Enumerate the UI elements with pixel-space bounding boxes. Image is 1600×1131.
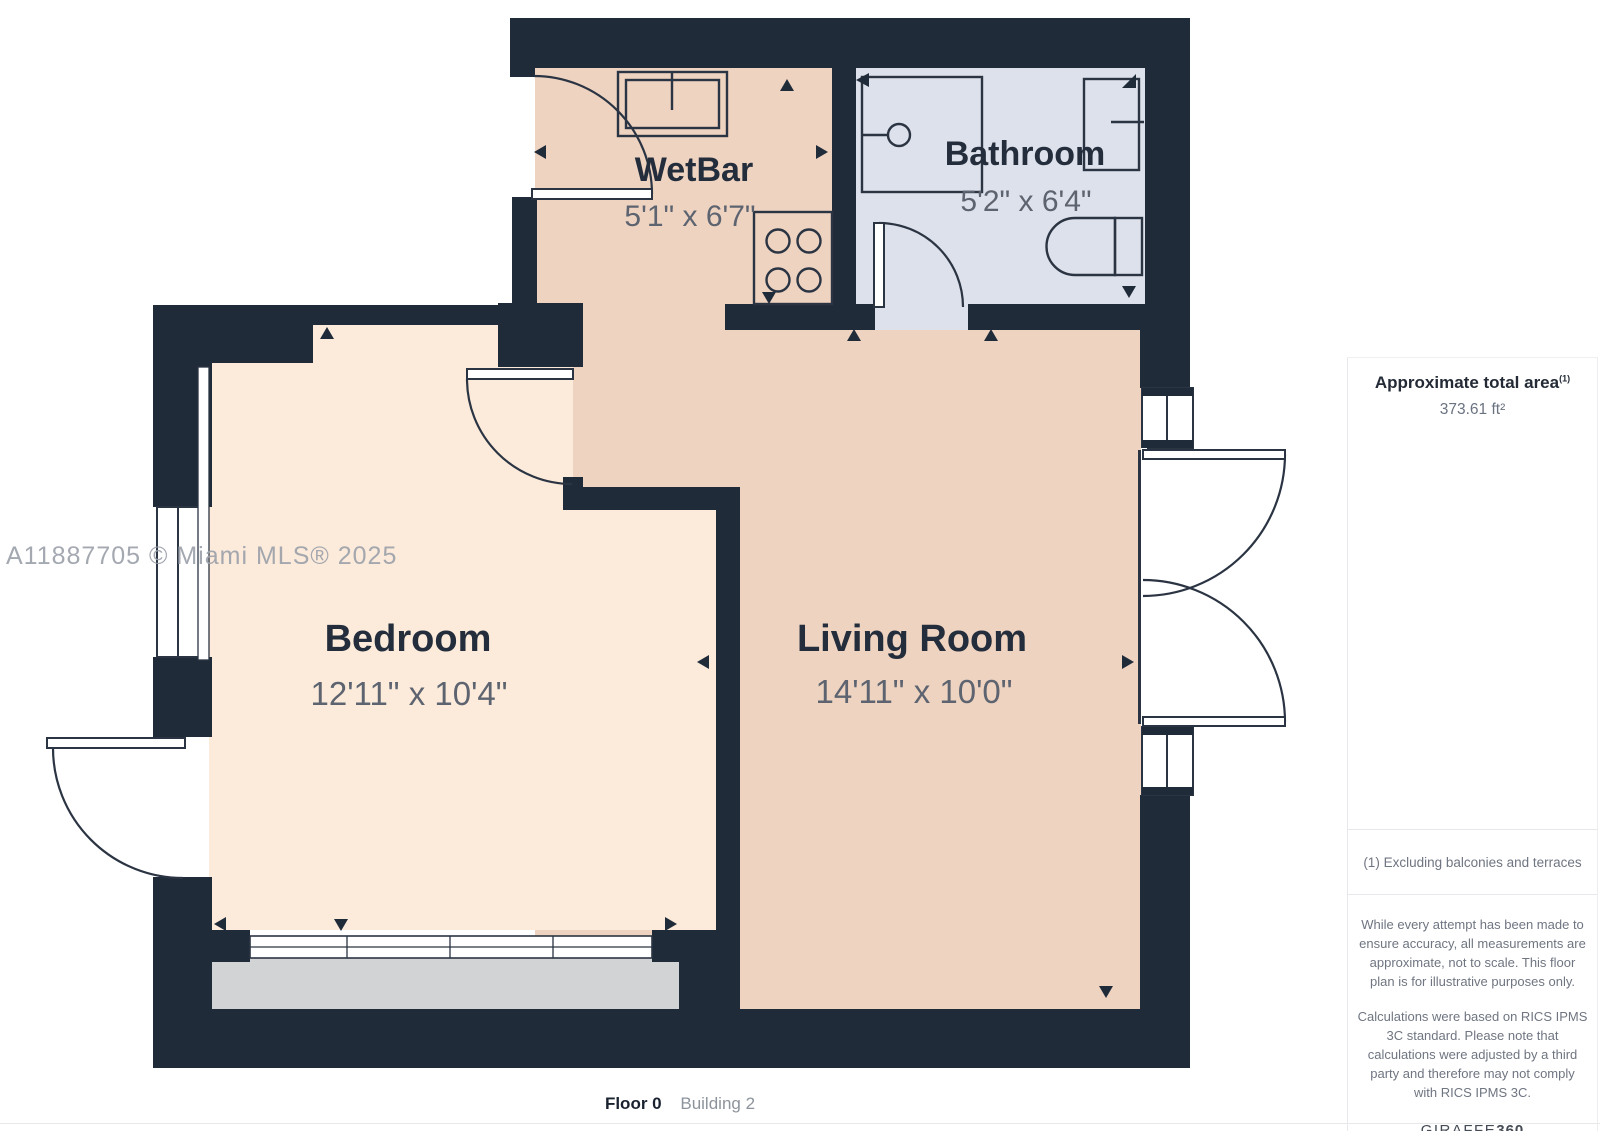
disclaimer-paragraph-2: Calculations were based on RICS IPMS 3C … [1358,1007,1588,1102]
building-label: Building 2 [680,1094,755,1113]
total-area-value: 373.61 ft² [1348,401,1597,419]
bedroom-label: Bedroom [325,618,492,660]
bathroom-doorway-floor [875,304,968,330]
living-room-dims: 14'11" x 10'0" [816,673,1013,710]
wetbar-label: WetBar [635,151,753,189]
terrace-floor [210,958,680,1009]
bathroom-label: Bathroom [945,135,1106,173]
giraffe360-logo-text: GIRAFFE [1421,1122,1497,1131]
total-area-title: Approximate total area(1) [1348,373,1597,393]
balcony-threshold [1138,450,1141,724]
balcony-double-doors [1143,450,1285,726]
mls-watermark: A11887705 © Miami MLS® 2025 [6,542,397,571]
bathroom-dims: 5'2" x 6'4" [960,185,1091,218]
total-area-footnote-ref: (1) [1559,373,1570,383]
floorplan-page: WetBar 5'1" x 6'7" Bathroom 5'2" x 6'4" … [0,0,1600,1131]
floor-indicator: Floor 0 Building 2 [540,1094,820,1114]
footnote-panel: (1) Excluding balconies and terraces [1348,829,1597,894]
bedroom-exterior-door [47,738,185,878]
disclaimer-paragraph-1: While every attempt has been made to ens… [1358,915,1588,991]
bedroom-dims: 12'11" x 10'4" [311,675,508,712]
sidebar: Approximate total area(1) 373.61 ft² (1)… [1347,357,1598,1131]
footnote-text: (1) Excluding balconies and terraces [1363,855,1581,870]
living-room-label: Living Room [797,618,1027,660]
giraffe360-logo: GIRAFFE360 [1348,1122,1597,1131]
total-area-panel: Approximate total area(1) 373.61 ft² [1348,373,1597,829]
total-area-title-text: Approximate total area [1375,373,1559,392]
floor-label: Floor 0 [605,1094,662,1113]
bedroom-wall-sill [198,367,209,660]
disclaimer-panel: While every attempt has been made to ens… [1348,894,1597,1131]
giraffe360-logo-suffix: 360 [1496,1122,1524,1131]
wetbar-dims: 5'1" x 6'7" [624,200,755,233]
